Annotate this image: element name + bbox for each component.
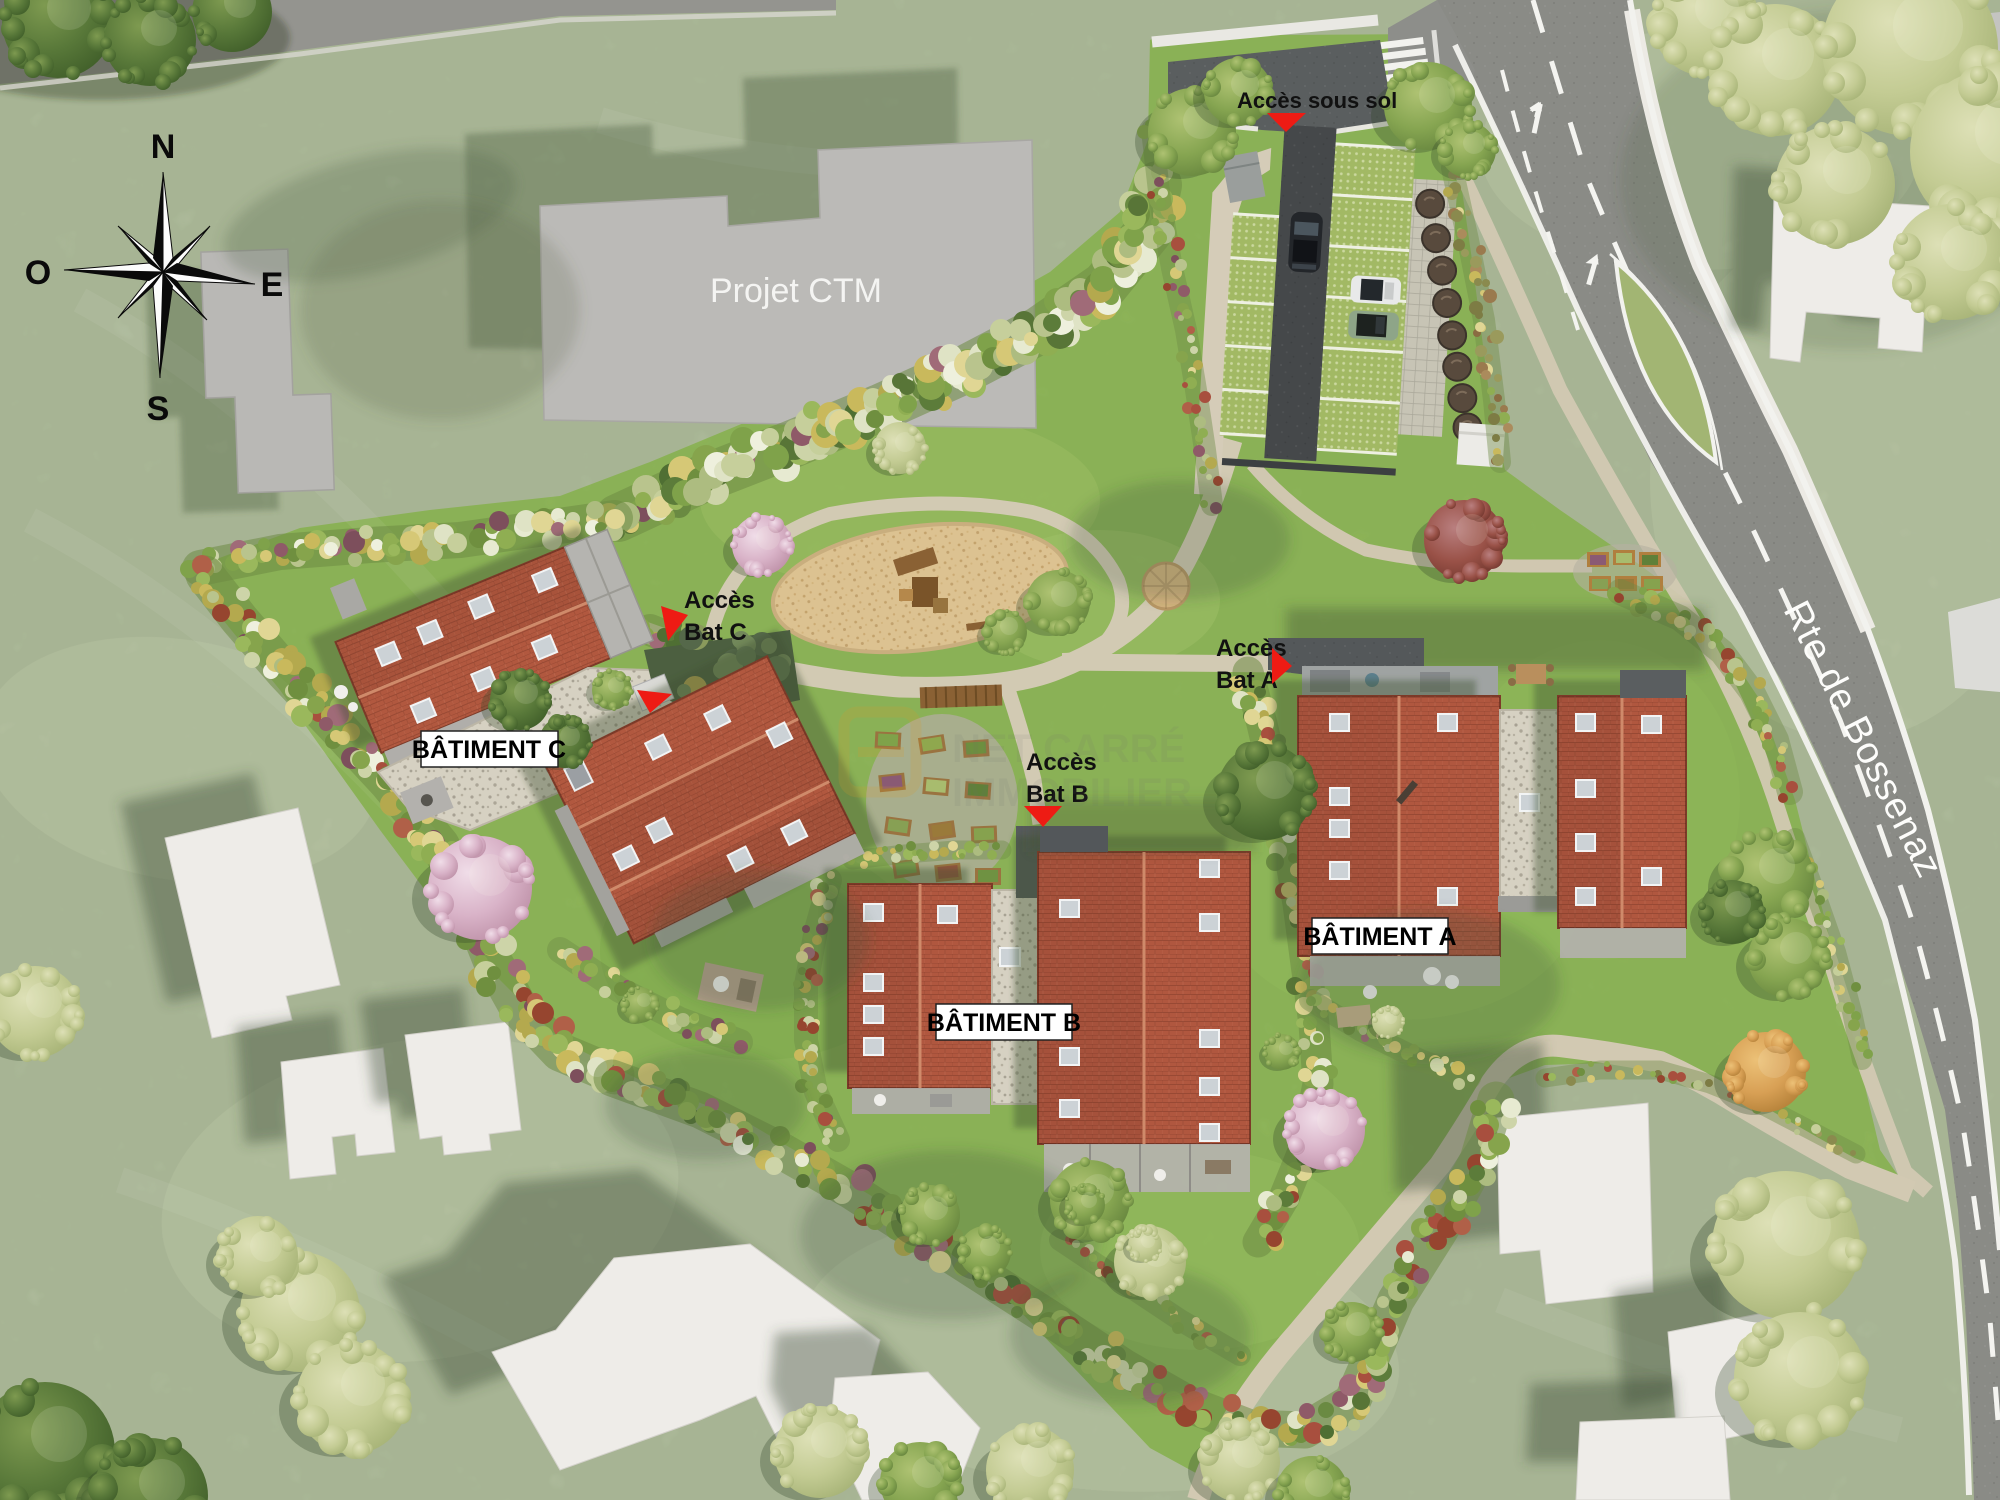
svg-text:Bat A: Bat A xyxy=(1216,667,1278,694)
svg-text:Accès: Accès xyxy=(684,587,755,614)
svg-text:S: S xyxy=(147,390,170,428)
svg-text:IMMOBILIER: IMMOBILIER xyxy=(952,771,1192,815)
svg-text:Bat C: Bat C xyxy=(684,619,747,646)
svg-text:O: O xyxy=(25,254,51,292)
svg-text:BÂTIMENT B: BÂTIMENT B xyxy=(927,1007,1081,1037)
svg-text:Projet CTM: Projet CTM xyxy=(710,272,882,310)
svg-text:E: E xyxy=(261,266,284,304)
svg-text:N: N xyxy=(151,128,176,166)
svg-text:Accès sous sol: Accès sous sol xyxy=(1237,88,1397,113)
svg-text:NET CARRÉ: NET CARRÉ xyxy=(952,726,1185,771)
svg-text:BÂTIMENT C: BÂTIMENT C xyxy=(412,734,566,764)
svg-text:BÂTIMENT A: BÂTIMENT A xyxy=(1303,921,1456,951)
